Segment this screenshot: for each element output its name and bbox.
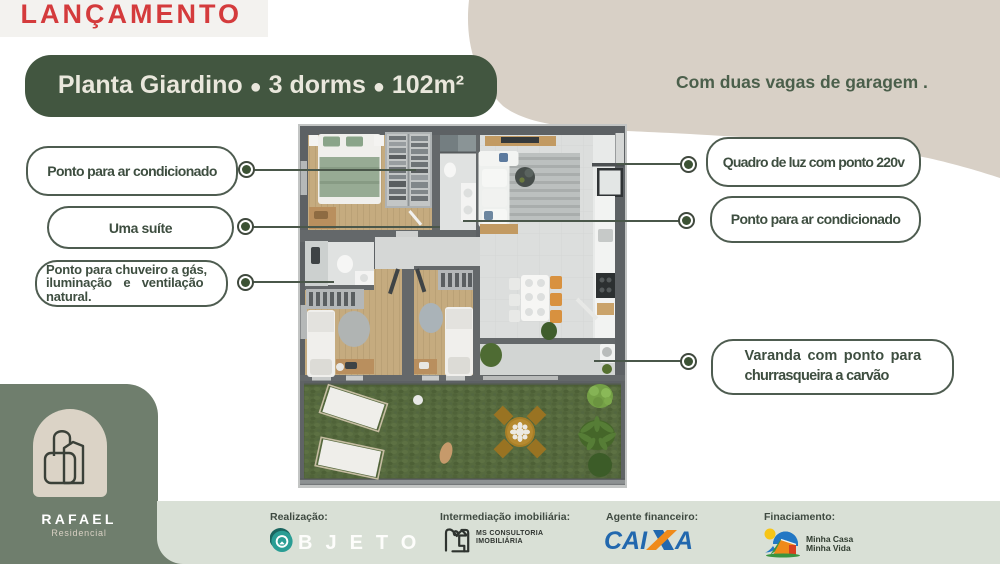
svg-text:CAI: CAI <box>604 528 648 554</box>
svg-text:A: A <box>674 528 693 554</box>
svg-text:BJETO: BJETO <box>298 532 420 554</box>
